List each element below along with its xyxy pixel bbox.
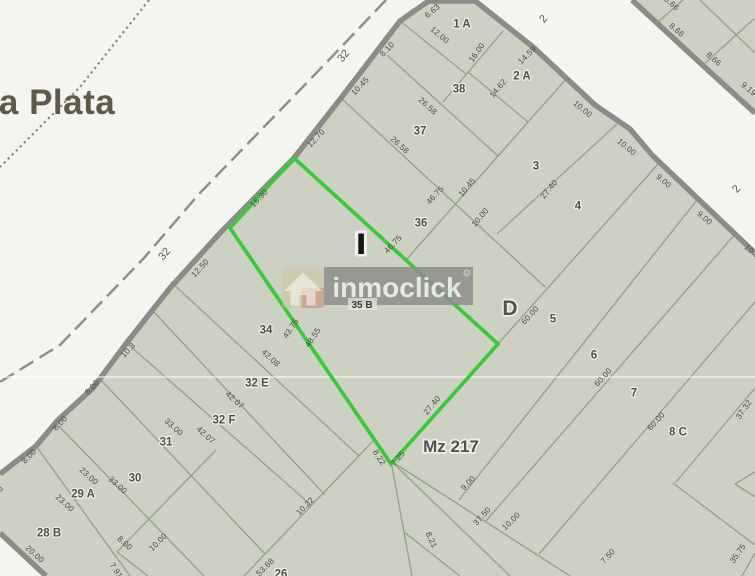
svg-text:36: 36 [415, 218, 428, 230]
svg-text:37: 37 [414, 126, 427, 138]
svg-text:26: 26 [275, 569, 288, 576]
svg-text:3: 3 [533, 161, 539, 173]
svg-text:La Plata: La Plata [0, 83, 115, 122]
svg-text:38: 38 [453, 84, 466, 96]
svg-text:32 E: 32 E [245, 378, 269, 390]
svg-text:Mz 217: Mz 217 [423, 437, 479, 456]
svg-text:29 A: 29 A [71, 489, 95, 501]
svg-text:6: 6 [591, 350, 597, 362]
svg-text:28 B: 28 B [37, 528, 61, 540]
svg-text:D: D [502, 297, 517, 320]
svg-text:32 F: 32 F [212, 415, 235, 427]
svg-text:35 B: 35 B [351, 300, 372, 311]
svg-text:8 C: 8 C [669, 427, 687, 439]
svg-text:34: 34 [260, 325, 273, 337]
svg-text:5: 5 [550, 314, 557, 326]
svg-text:30: 30 [129, 473, 142, 485]
svg-text:7: 7 [631, 388, 637, 400]
svg-text:R: R [465, 272, 469, 278]
svg-text:2 A: 2 A [513, 71, 530, 83]
svg-text:1 A: 1 A [453, 19, 470, 31]
svg-text:4: 4 [575, 201, 582, 213]
svg-text:31: 31 [160, 437, 173, 449]
